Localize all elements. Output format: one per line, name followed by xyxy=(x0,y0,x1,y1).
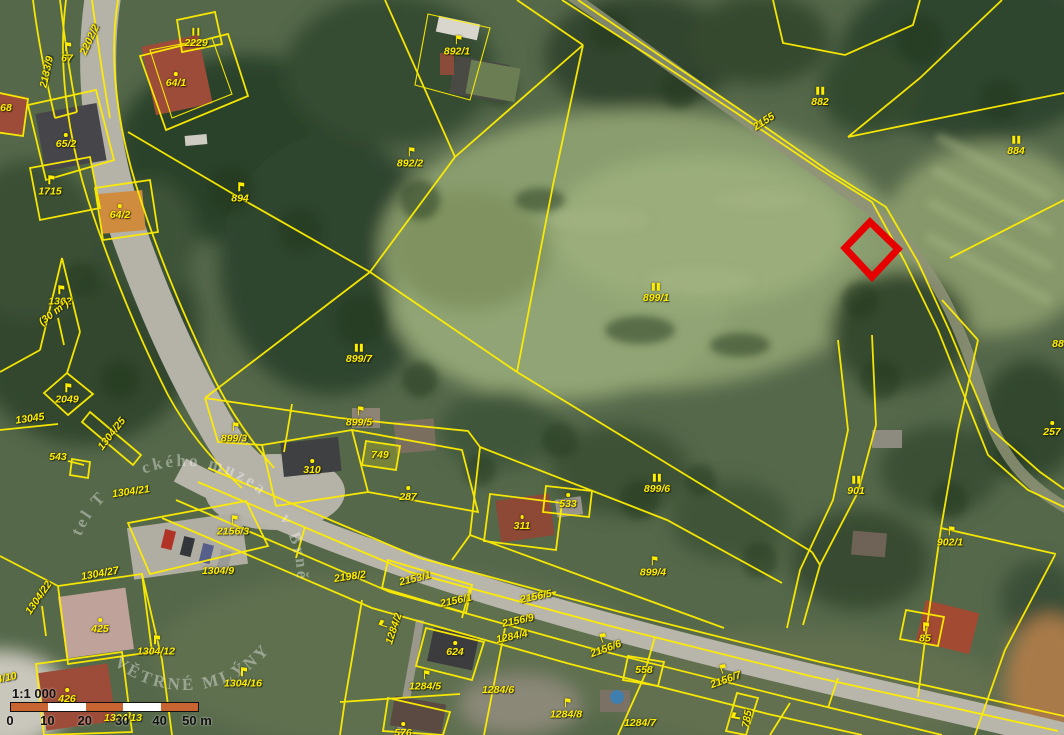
scale-bar: 1:1 000 01020304050 m xyxy=(8,686,238,732)
scale-segment xyxy=(48,703,85,711)
scale-tick: 10 xyxy=(40,713,54,728)
scale-strip xyxy=(10,702,199,712)
scale-tick: 20 xyxy=(78,713,92,728)
parcel-749 xyxy=(362,441,400,470)
scale-tick: 50 m xyxy=(182,713,212,728)
aerial-layer: tel T ckého muzea v Brně VĚTRNÉ MLÝNY xyxy=(0,0,1064,735)
scale-ticks: 01020304050 m xyxy=(10,713,230,729)
scale-segment xyxy=(123,703,160,711)
scale-tick: 40 xyxy=(152,713,166,728)
scale-ratio: 1:1 000 xyxy=(12,686,56,701)
scale-tick: 0 xyxy=(6,713,13,728)
scale-segment xyxy=(11,703,48,711)
scale-segment xyxy=(86,703,123,711)
map-canvas[interactable]: tel T ckého muzea v Brně VĚTRNÉ MLÝNY 22… xyxy=(0,0,1064,735)
scale-tick: 30 xyxy=(115,713,129,728)
scale-segment xyxy=(161,703,198,711)
